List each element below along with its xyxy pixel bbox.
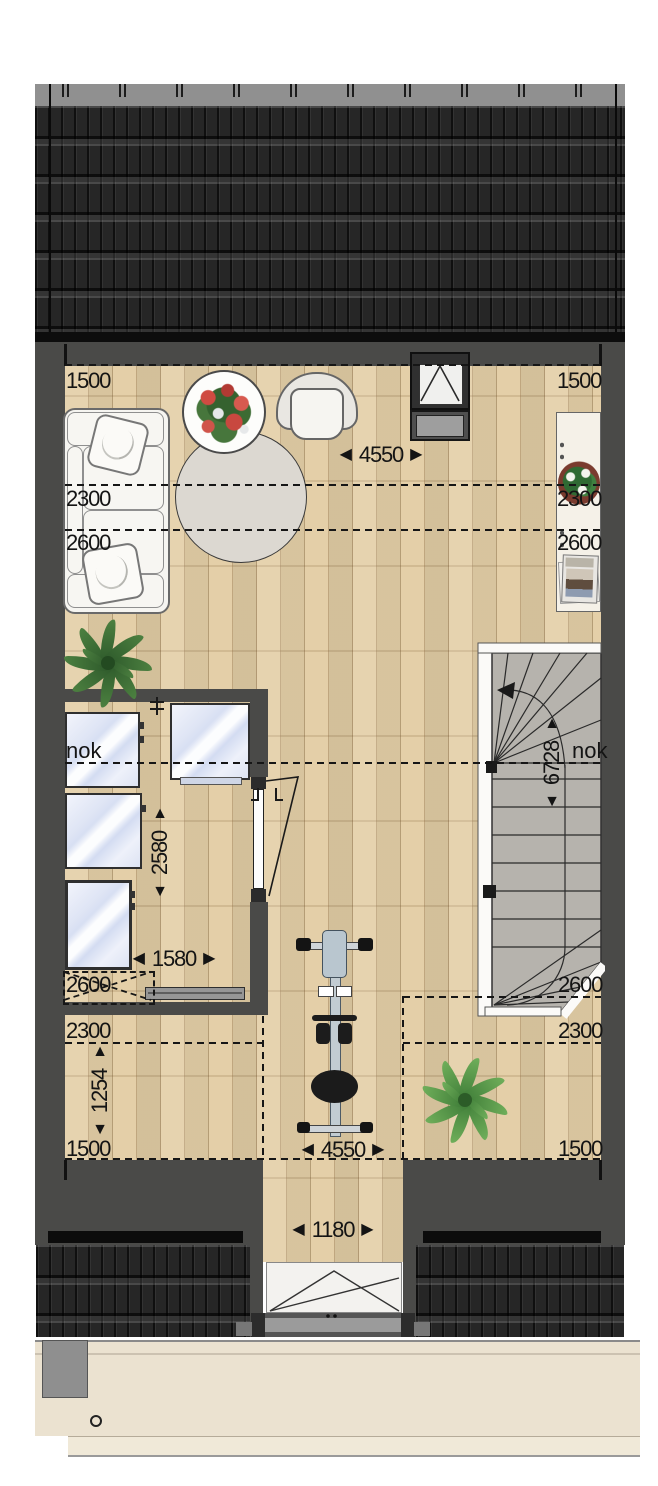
dim-bottom-left-2600: 2600 (66, 974, 110, 996)
door-leaf (253, 789, 264, 889)
plant-top-left (63, 618, 153, 708)
tick-top-right (599, 344, 602, 366)
bench-handle-bar (312, 1015, 357, 1021)
ridge-line-nok (65, 762, 601, 764)
roof-seam-line-right (615, 84, 617, 332)
arrow-left-icon: ◀ (292, 1222, 304, 1238)
bench-weight-right (358, 938, 373, 951)
dim-bottom-right-2300: 2300 (558, 1020, 602, 1042)
dim-bottom-right-1500: 1500 (558, 1138, 602, 1160)
stair-railing (478, 643, 492, 1016)
sideboard (556, 412, 601, 612)
radiator-fin-line (148, 992, 242, 994)
roof-seam-line-left (49, 84, 51, 332)
sofa (63, 408, 170, 614)
floor-dormer-corridor (263, 1160, 403, 1262)
ridge-tick-marks (35, 84, 625, 97)
closet-wall-right-lower (250, 902, 268, 1015)
dim-top-right-1500: 1500 (557, 370, 601, 392)
roof-tiles-bottom-right (416, 1245, 624, 1337)
dim-right-2300: 2300 (557, 488, 601, 510)
dim-vertical-text: 6728 (537, 734, 567, 792)
tick-top-left (64, 344, 67, 366)
pillow-fold (92, 552, 131, 593)
dormer-wall-left (250, 1160, 263, 1337)
wall-left (35, 342, 65, 1230)
dim-vertical-text: 1254 (85, 1062, 115, 1120)
stair-treads-area (492, 653, 601, 1013)
plant-center (458, 1093, 472, 1107)
roof-window-glass (419, 364, 463, 405)
dormer-foot-left (236, 1322, 252, 1336)
armchair-seat (290, 388, 344, 440)
dormer-sill-inner (265, 1318, 403, 1332)
dormer-window-glass (266, 1262, 402, 1313)
headroom-line-top-2300 (65, 484, 601, 486)
headroom-line-top-2600 (65, 529, 601, 531)
dim-value: 2580 (149, 831, 171, 875)
arrow-left-icon: ◀ (340, 447, 352, 463)
roof-tiles-top (35, 106, 625, 332)
dim-bottom-right-2600: 2600 (558, 974, 602, 996)
arrow-down-icon: ▼ (92, 1122, 108, 1138)
stair-entry-band (478, 643, 601, 653)
roof-window-panel (410, 410, 470, 441)
door-post-top (251, 777, 266, 789)
appliance-4 (170, 703, 250, 780)
drain-circle (90, 1415, 102, 1427)
arrow-left-icon: ◀ (302, 1142, 314, 1158)
arrow-right-icon: ▶ (203, 951, 215, 967)
dim-left-2300: 2300 (66, 488, 110, 510)
dim-value: 4550 (359, 444, 403, 466)
sideboard-magazine (561, 554, 599, 603)
stair-newel-post-2 (483, 885, 496, 898)
pillow-fold (96, 421, 141, 466)
wall-top (35, 342, 625, 366)
armchair (276, 372, 358, 444)
lower-roof-band-line (35, 1353, 640, 1355)
appliance-1-hinge2 (139, 736, 144, 743)
gutter-band (68, 1436, 640, 1457)
dormer-sill-post-left (251, 1313, 265, 1337)
plant-center (101, 656, 115, 670)
dim-closet-width: ◀ 1580 ▶ (118, 948, 230, 970)
arrow-down-icon: ▼ (544, 794, 560, 810)
roof-tiles-bottom-left (36, 1245, 250, 1337)
appliance-3-hinge2 (130, 903, 135, 910)
headroom-line-vert-left (262, 1016, 264, 1158)
dim-bottom-left-1500: 1500 (66, 1138, 110, 1160)
staircase (475, 640, 605, 1020)
bench-seat (311, 1070, 358, 1103)
dormer-sill (251, 1313, 415, 1337)
roof-window (410, 352, 470, 410)
bench-weight-left (296, 938, 311, 951)
dim-bottom-left-2300: 2300 (66, 1020, 110, 1042)
eave-cap-bottom-left (48, 1231, 243, 1243)
workout-bench (290, 925, 380, 1140)
tick-bottom-right (599, 1160, 602, 1180)
dim-value: 6728 (541, 741, 563, 785)
tick-bottom-left (64, 1160, 67, 1180)
arrow-left-icon: ◀ (133, 951, 145, 967)
headroom-line-top-1500 (65, 364, 601, 366)
ridge-label-left: nok (66, 740, 101, 762)
dim-right-2600: 2600 (557, 532, 601, 554)
dim-left-2600: 2600 (66, 532, 110, 554)
dim-niche-depth: ▲ 1254 ▼ (85, 1044, 115, 1138)
arrow-right-icon: ▶ (410, 447, 422, 463)
bench-head-pad (322, 930, 347, 978)
dim-top-left-1500: 1500 (66, 370, 110, 392)
bench-pedal-right (338, 1023, 352, 1044)
flower-bouquet (188, 376, 260, 448)
dim-vertical-text: 2580 (145, 824, 175, 882)
bench-foot-left (297, 1122, 310, 1133)
dim-top-width: ◀ 4550 ▶ (296, 444, 466, 466)
radiator (145, 987, 245, 1000)
magazine-photo (565, 569, 593, 598)
headroom-line-vert-right (402, 996, 404, 1158)
dim-dormer-width: ◀ 1180 ▶ (248, 1219, 418, 1241)
dim-closet-depth: ▲ 2580 ▼ (145, 806, 175, 900)
magazine-title (565, 557, 593, 567)
roof-ridge-strip (35, 84, 625, 108)
bench-clip-right (336, 986, 352, 997)
appliance-1-hinge (139, 722, 144, 729)
plant-bottom-right (417, 1052, 513, 1148)
dim-value: 1180 (312, 1219, 355, 1241)
lower-roof-band (35, 1340, 640, 1436)
floor-plan-canvas: 1500 2300 2600 1500 2300 2600 ◀ 4550 ▶ n… (0, 0, 658, 1486)
roof-eave-band-top (35, 332, 625, 342)
door-post-bottom (251, 889, 266, 902)
dormer-sill-post-right (401, 1313, 415, 1337)
arrow-up-icon: ▲ (92, 1044, 108, 1060)
dim-value: 1580 (152, 948, 196, 970)
dim-bottom-width: ◀ 4550 ▶ (258, 1139, 428, 1161)
dim-value: 1254 (89, 1069, 111, 1113)
eave-cap-bottom-right (423, 1231, 601, 1243)
arrow-right-icon: ▶ (372, 1142, 384, 1158)
bench-foot-right (360, 1122, 373, 1133)
arrow-up-icon: ▲ (544, 716, 560, 732)
round-rug (175, 431, 307, 563)
arrow-up-icon: ▲ (152, 806, 168, 822)
appliance-4-tray (180, 777, 242, 785)
bench-foot-bar (302, 1125, 369, 1133)
roof-window-panel-inner (416, 415, 464, 437)
stair-bottom-railing (485, 1007, 561, 1016)
dim-value: 4550 (321, 1139, 365, 1161)
dim-stair-depth: ▲ 6728 ▼ (537, 716, 567, 810)
arrow-right-icon: ▶ (361, 1222, 373, 1238)
bench-clip-left (318, 986, 334, 997)
lower-roof-gray-block (42, 1340, 88, 1398)
appliance-3-hinge (130, 891, 135, 898)
flower-table (182, 370, 266, 454)
dormer-foot-right (414, 1322, 430, 1336)
ridge-label-right: nok (572, 740, 607, 762)
bench-pedal-left (316, 1023, 330, 1044)
appliance-2 (65, 793, 142, 869)
arrow-down-icon: ▼ (152, 884, 168, 900)
dormer-wall-right (403, 1160, 416, 1337)
